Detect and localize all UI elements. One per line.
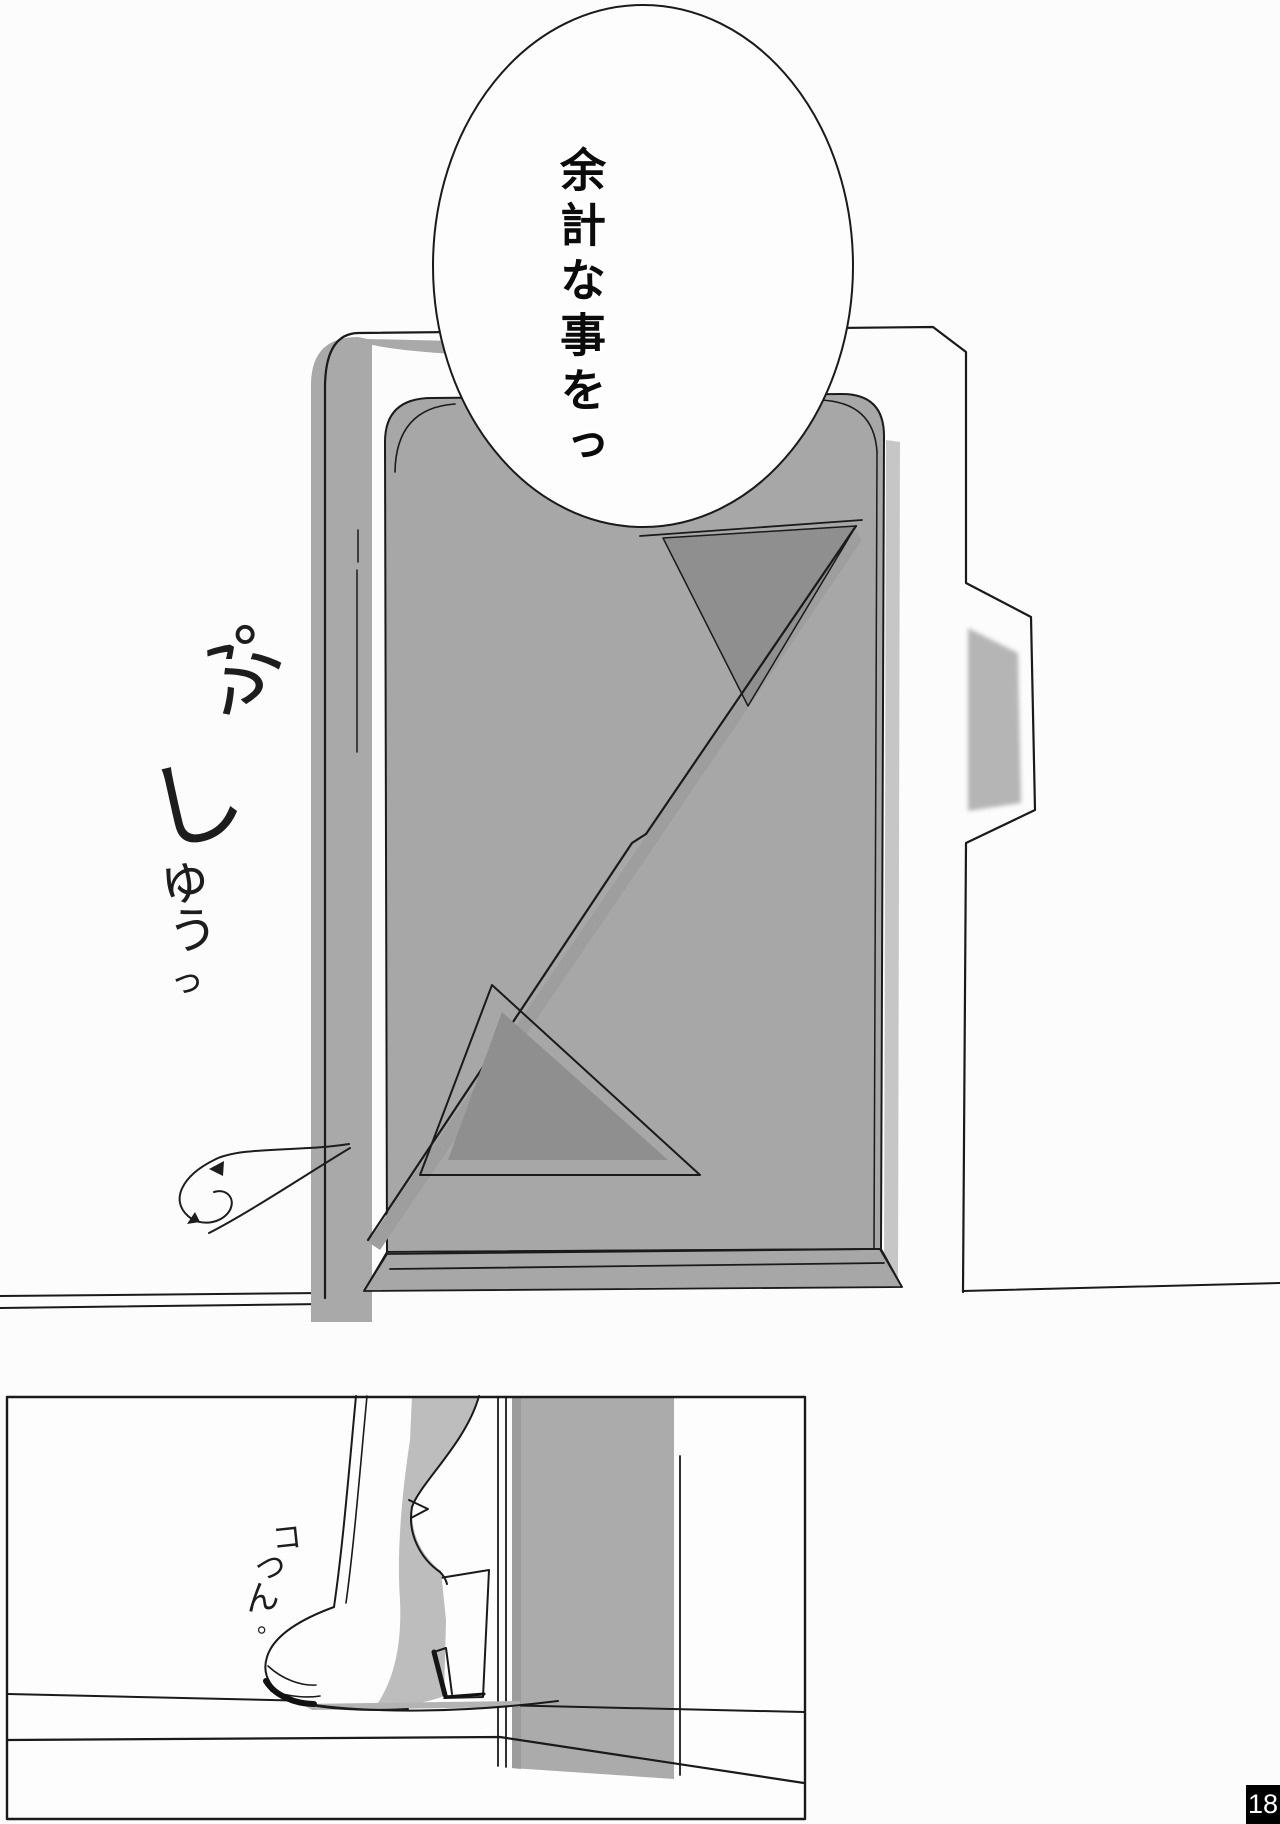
bottom-wall-gray-band <box>512 1398 674 1779</box>
doorframe-shadow-strip <box>311 337 372 1322</box>
tab-recess-plate <box>968 628 1021 811</box>
speech-bubble-text: 余計な事をっ <box>551 146 603 506</box>
manga-page: 余計な事をっ ぷ し ゅ う っ コ つ ん 。 18 <box>0 0 1280 1824</box>
boot-heel-block <box>440 1570 489 1698</box>
bottom-panel <box>7 1396 805 1819</box>
page-number-badge: 18 <box>1246 1785 1280 1824</box>
floor-line-right <box>963 1283 1280 1291</box>
sfx-heel-char: 。 <box>257 1612 281 1636</box>
page-number: 18 <box>1246 1785 1280 1824</box>
door-bottom-trim <box>364 1249 902 1291</box>
sfx-door-char: っ <box>169 963 205 999</box>
door-right-shadow <box>884 440 900 1285</box>
speech-bubble <box>433 5 853 527</box>
bottom-wall-band-edge <box>512 1398 521 1769</box>
floor-line-left <box>0 1293 324 1308</box>
sfx-door-char: う <box>166 904 221 959</box>
